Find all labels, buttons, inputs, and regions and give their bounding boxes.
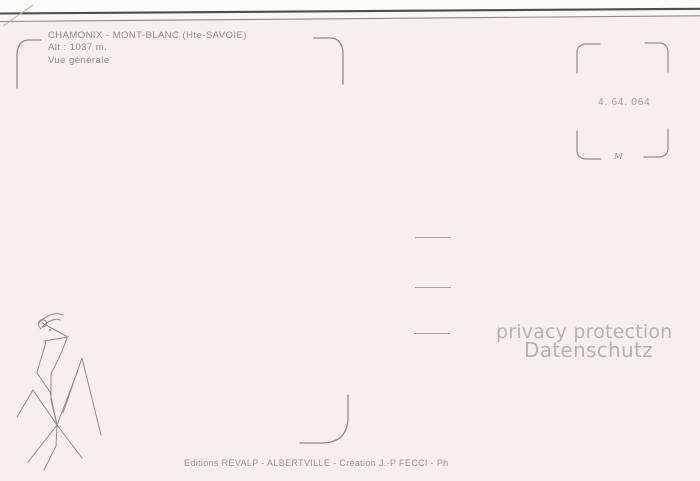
- caption-altitude: Alt : 1037 m.: [48, 42, 247, 54]
- mountain-inner-slope: [57, 370, 78, 425]
- corner-mark-top-right-icon: [314, 38, 343, 84]
- privacy-watermark-line2: Datenschutz: [524, 338, 653, 362]
- chamois-legs: [28, 425, 82, 470]
- stamp-corner-top-right-icon: [645, 43, 668, 72]
- address-line: [415, 287, 451, 288]
- stamp-letter-mark: M: [614, 152, 623, 162]
- caption-title: CHAMONIX - MONT-BLANC (Hte-SAVOIE): [48, 30, 247, 42]
- address-line: [414, 333, 450, 334]
- stamp-corner-bottom-left-icon: [577, 131, 601, 159]
- reference-number: 4. 64. 064: [598, 97, 650, 108]
- chamois-horns: [39, 314, 63, 327]
- caption-view: Vue générale: [48, 55, 247, 67]
- chamois-chest: [51, 338, 67, 425]
- chamois-logo-icon: [8, 302, 142, 480]
- publisher-imprint: Editions REVALP - ALBERTVILLE - Création…: [184, 458, 449, 468]
- stamp-corner-top-left-icon: [577, 44, 600, 73]
- corner-mark-top-left-icon: [17, 40, 41, 88]
- mountain-big-peak: [63, 358, 101, 435]
- stamp-corner-bottom-right-icon: [644, 129, 668, 157]
- caption-block: CHAMONIX - MONT-BLANC (Hte-SAVOIE) Alt :…: [48, 30, 247, 67]
- chamois-eye: [49, 329, 51, 331]
- corner-mark-bottom-right-icon: [300, 395, 348, 443]
- scan-edge-lines: [0, 0, 700, 32]
- address-line: [415, 237, 451, 238]
